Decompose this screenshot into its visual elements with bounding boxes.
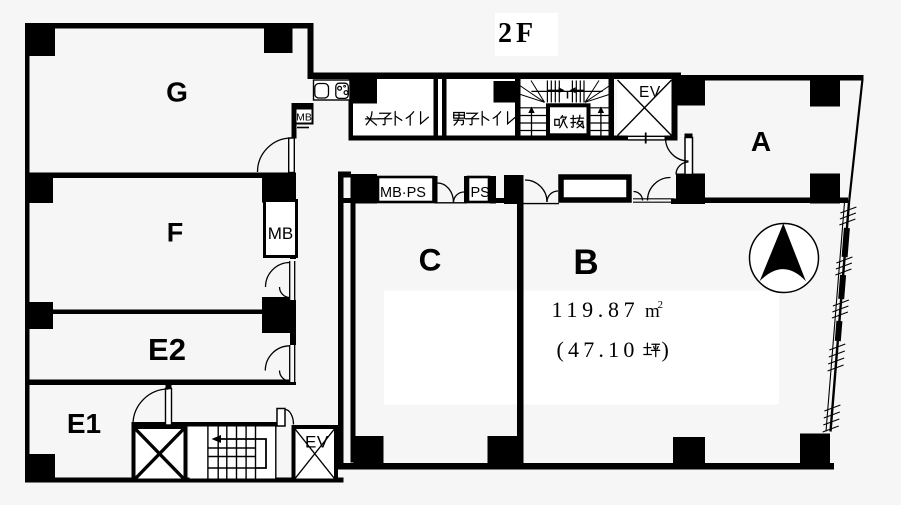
svg-text:2F: 2F [498, 18, 537, 49]
svg-text:119.87: 119.87 [552, 297, 640, 322]
svg-text:MB: MB [268, 224, 294, 243]
svg-text:PS: PS [471, 185, 490, 201]
svg-text:E2: E2 [148, 332, 186, 367]
svg-text:MB: MB [296, 112, 312, 124]
svg-text:EV: EV [639, 84, 661, 101]
svg-text:B: B [573, 243, 598, 282]
svg-text:A: A [751, 126, 771, 157]
svg-text:EV: EV [305, 433, 329, 452]
svg-text:): ) [662, 337, 669, 362]
svg-text:F: F [167, 218, 184, 248]
svg-text:MB·PS: MB·PS [380, 185, 426, 201]
svg-text:2: 2 [658, 299, 664, 311]
svg-text:C: C [419, 242, 442, 278]
svg-text:(47.10: (47.10 [557, 337, 639, 362]
svg-text:E1: E1 [67, 408, 101, 439]
svg-text:G: G [166, 77, 188, 108]
